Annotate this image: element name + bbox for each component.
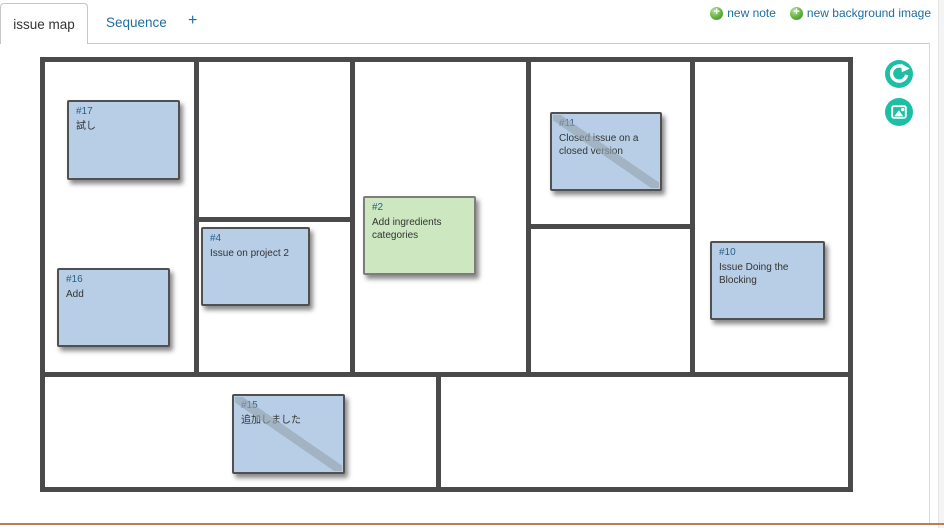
background-image-button[interactable] [885, 98, 913, 126]
board-cell[interactable] [531, 229, 690, 372]
note-subject: Add ingredients categories [372, 216, 467, 242]
note-subject: Closed issue on a closed version [559, 132, 653, 158]
note-15[interactable]: #15追加しました [232, 394, 345, 474]
tab-add-button[interactable]: + [188, 12, 197, 30]
note-10[interactable]: #10Issue Doing the Blocking [710, 241, 825, 320]
new-background-image-link[interactable]: new background image [790, 6, 931, 20]
note-2[interactable]: #2Add ingredients categories [363, 196, 476, 275]
refresh-icon [885, 60, 913, 88]
new-background-image-label: new background image [807, 6, 931, 20]
tabbar-divider [88, 43, 929, 44]
content-right-border [929, 43, 930, 524]
board-cell[interactable] [441, 377, 848, 487]
note-id: #15 [241, 400, 336, 411]
refresh-button[interactable] [885, 60, 913, 88]
board-divider [526, 224, 695, 229]
note-11[interactable]: #11Closed issue on a closed version [550, 112, 662, 191]
issue-map-page: issue map Sequence + new note new backgr… [0, 0, 944, 528]
note-id: #16 [66, 274, 161, 285]
board-cell[interactable] [199, 62, 350, 217]
new-note-label: new note [727, 6, 776, 20]
note-subject: Issue on project 2 [210, 247, 301, 260]
note-id: #17 [76, 106, 171, 117]
board-divider [526, 62, 531, 372]
note-id: #4 [210, 233, 301, 244]
note-subject: 追加しました [241, 414, 336, 427]
board-divider [194, 217, 355, 222]
note-4[interactable]: #4Issue on project 2 [201, 227, 310, 306]
tab-sequence[interactable]: Sequence [106, 15, 167, 30]
note-subject: 試し [76, 120, 171, 133]
board-divider [690, 62, 695, 372]
note-id: #10 [719, 247, 816, 258]
note-id: #2 [372, 202, 467, 213]
board-cell[interactable] [695, 62, 848, 372]
note-id: #11 [559, 118, 653, 129]
note-subject: Issue Doing the Blocking [719, 261, 816, 287]
board-divider [436, 372, 441, 487]
board-divider [45, 372, 848, 377]
note-16[interactable]: #16Add [57, 268, 170, 347]
tab-issue-map[interactable]: issue map [0, 3, 88, 44]
side-buttons [885, 60, 913, 126]
note-17[interactable]: #17試し [67, 100, 180, 180]
plus-circle-icon [790, 7, 803, 20]
plus-circle-icon [710, 7, 723, 20]
window-gutter [938, 0, 944, 528]
new-note-link[interactable]: new note [710, 6, 776, 20]
footer-top-border [0, 523, 944, 525]
image-icon [885, 98, 913, 126]
note-subject: Add [66, 288, 161, 301]
toolbar: new note new background image [710, 6, 931, 20]
